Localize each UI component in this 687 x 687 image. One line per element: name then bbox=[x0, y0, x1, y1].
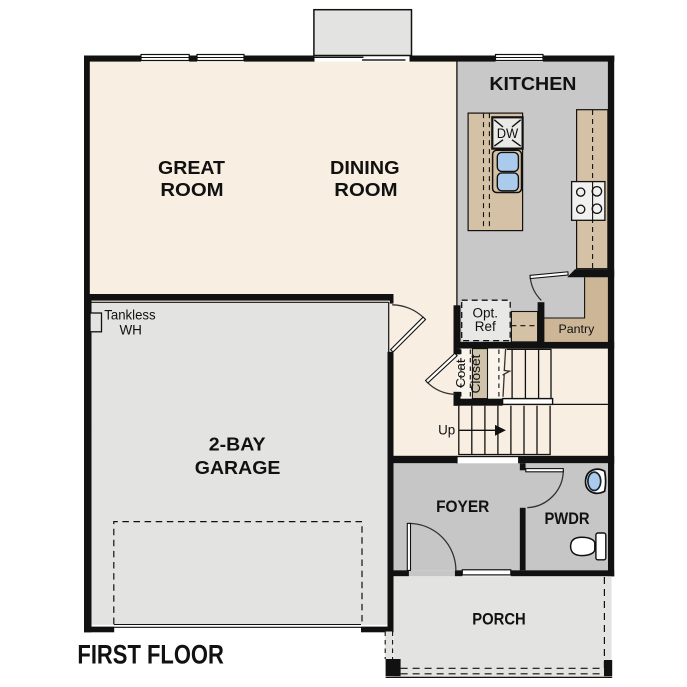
svg-text:Up: Up bbox=[438, 423, 455, 438]
svg-text:Tankless: Tankless bbox=[104, 307, 155, 323]
svg-text:Coat: Coat bbox=[453, 359, 468, 388]
svg-text:GARAGE: GARAGE bbox=[195, 457, 281, 478]
svg-text:Ref: Ref bbox=[475, 319, 496, 334]
svg-text:ROOM: ROOM bbox=[160, 179, 223, 200]
svg-text:WH: WH bbox=[119, 321, 142, 337]
svg-text:ROOM: ROOM bbox=[334, 179, 397, 200]
svg-text:PORCH: PORCH bbox=[472, 611, 526, 629]
svg-text:GREAT: GREAT bbox=[158, 157, 226, 178]
svg-text:KITCHEN: KITCHEN bbox=[489, 73, 576, 94]
svg-text:Pantry: Pantry bbox=[559, 322, 596, 336]
svg-text:FOYER: FOYER bbox=[436, 498, 489, 516]
svg-text:FIRST FLOOR: FIRST FLOOR bbox=[77, 640, 224, 670]
svg-text:DW: DW bbox=[497, 125, 519, 141]
svg-text:2-BAY: 2-BAY bbox=[209, 433, 266, 454]
svg-text:Closet: Closet bbox=[468, 354, 483, 393]
svg-text:PWDR: PWDR bbox=[544, 510, 589, 528]
svg-text:DINING: DINING bbox=[330, 157, 400, 178]
